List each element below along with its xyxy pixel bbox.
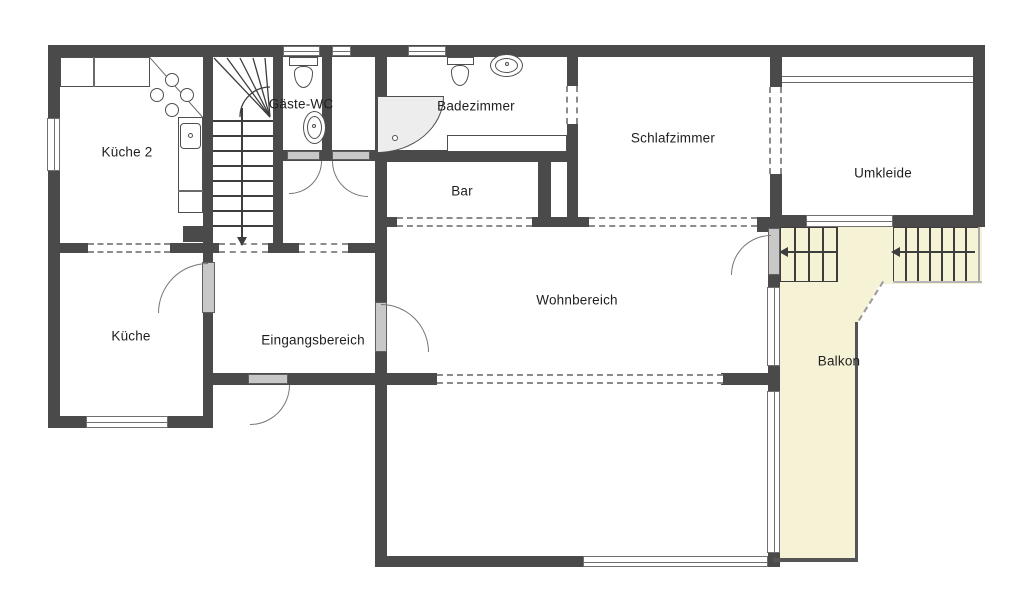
stair-arrow-left-icon xyxy=(779,247,788,257)
stair-arrow-down-icon xyxy=(237,237,247,246)
stair-tread xyxy=(929,227,931,282)
opening-schlafzimmer-wohnbereich xyxy=(589,217,757,227)
wall-left xyxy=(48,45,60,428)
stove-burner-icon xyxy=(180,88,194,102)
corner-shower-icon xyxy=(377,96,444,153)
kitchen-counter xyxy=(60,57,150,87)
opening-bar-wohnbereich xyxy=(397,217,532,227)
stove-burner-icon xyxy=(165,73,179,87)
stair-tread xyxy=(213,210,273,212)
stair-tread xyxy=(213,165,273,167)
opening-badezimmer-schlafzimmer xyxy=(566,86,578,124)
window xyxy=(408,46,446,56)
stair-tread xyxy=(822,227,824,282)
room-label-eingangsbereich: Eingangsbereich xyxy=(261,333,365,348)
stair-tread xyxy=(213,135,273,137)
vanity-counter xyxy=(447,135,567,152)
room-label-schlafzimmer: Schlafzimmer xyxy=(631,131,715,146)
wall-right-outer xyxy=(973,45,985,227)
opening-schlafzimmer-umkleide xyxy=(769,87,782,174)
door-gaeste-wc-leaf xyxy=(287,151,320,160)
stair-tread xyxy=(941,227,943,282)
window xyxy=(47,118,60,171)
toilet-bowl-icon xyxy=(451,65,469,86)
sink-drain-icon xyxy=(505,62,509,66)
floor-plan: Küche 2 Gäste-WC Badezimmer Bar Schlafzi… xyxy=(0,0,1034,616)
balcony-edge-stair xyxy=(893,281,982,283)
sink-drain-icon xyxy=(188,133,193,138)
counter-divider xyxy=(93,57,95,87)
wall-top xyxy=(48,45,985,57)
room-label-gaeste-wc: Gäste-WC xyxy=(269,97,334,112)
wall-stub-stairs xyxy=(183,226,203,242)
stair-tread xyxy=(213,195,273,197)
window xyxy=(767,391,780,553)
stair-tread xyxy=(213,150,273,152)
room-label-kueche: Küche xyxy=(111,329,150,344)
room-label-kueche2: Küche 2 xyxy=(102,145,153,160)
room-label-balkon: Balkon xyxy=(818,354,860,369)
stove-burner-icon xyxy=(165,103,179,117)
room-label-wohnbereich: Wohnbereich xyxy=(536,293,618,308)
door-entrance-swing xyxy=(250,385,290,425)
stair-tread xyxy=(794,227,796,282)
window xyxy=(583,556,768,567)
sink-drain-icon xyxy=(312,124,316,128)
wall-wohnbereich-bottom-b xyxy=(721,373,768,385)
window xyxy=(767,287,780,366)
window xyxy=(283,46,320,56)
stair-arrow-shaft xyxy=(788,251,836,253)
stair-tread xyxy=(965,227,967,282)
balcony-railing-bottom xyxy=(773,558,858,562)
stair-arrow-left-icon xyxy=(891,247,900,257)
stair-tread xyxy=(213,225,273,227)
stair-tread xyxy=(213,180,273,182)
toilet-tank-icon xyxy=(289,57,318,66)
wardrobe-line xyxy=(782,76,973,83)
window xyxy=(86,416,168,428)
door-niche-leaf xyxy=(332,151,370,160)
door-niche-swing xyxy=(332,161,368,197)
room-label-bar: Bar xyxy=(451,184,473,199)
stair-tread xyxy=(808,227,810,282)
stair-arrow-shaft xyxy=(241,108,243,238)
stair-tread xyxy=(953,227,955,282)
door-wohnbereich-swing xyxy=(381,304,429,352)
stair-tread xyxy=(917,227,919,282)
door-balkon-swing xyxy=(731,235,771,275)
stove-burner-icon xyxy=(150,88,164,102)
shower-drain-icon xyxy=(392,135,398,141)
wall-wohnbereich-bottom-a xyxy=(386,373,437,385)
wall-wohnbereich-top-b xyxy=(532,217,590,227)
toilet-bowl-icon xyxy=(294,66,313,88)
door-gaeste-wc-swing xyxy=(289,161,322,194)
stair-winder-fan xyxy=(213,45,275,121)
opening-kueche2-kueche xyxy=(88,243,170,253)
sliding-door-umkleide-balkon xyxy=(806,215,893,227)
wall-stair-left xyxy=(203,45,213,243)
opening-wohnbereich-south-room xyxy=(437,374,723,384)
counter-divider xyxy=(178,190,203,192)
room-label-badezimmer: Badezimmer xyxy=(437,99,515,114)
opening-vestibule-eingang xyxy=(299,243,348,253)
stair-tread xyxy=(905,227,907,282)
stair-tread xyxy=(836,227,838,282)
room-label-umkleide: Umkleide xyxy=(854,166,912,181)
door-entrance-leaf xyxy=(248,374,288,384)
wall-eingang-bottom xyxy=(203,373,388,385)
toilet-tank-icon xyxy=(447,57,474,65)
wall-badezimmer-schlafzimmer xyxy=(567,45,578,227)
window xyxy=(332,46,351,56)
door-kueche-swing xyxy=(158,263,208,313)
balcony-edge-right xyxy=(978,227,980,283)
stair-arrow-shaft xyxy=(900,251,975,253)
wall-bar-right xyxy=(538,160,551,217)
